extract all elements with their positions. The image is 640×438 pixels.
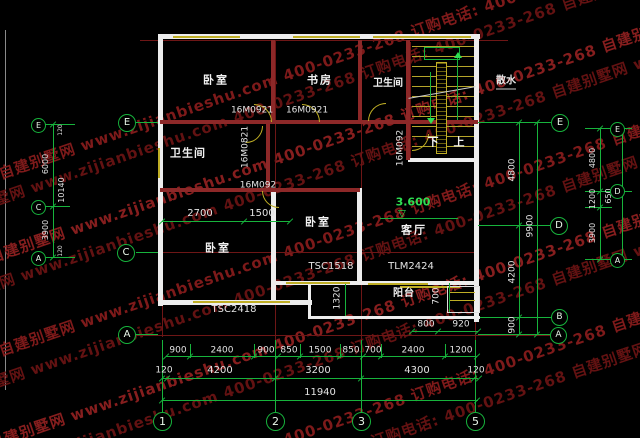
- dim-text: 6000: [42, 154, 50, 174]
- dim-text: 120: [58, 124, 64, 135]
- dim-text: 700: [364, 347, 381, 356]
- axis-bubble-A: A: [118, 326, 136, 344]
- dim-line: [478, 334, 550, 335]
- dim-line: [478, 122, 552, 123]
- room-label-balcony: 阳台: [393, 289, 415, 299]
- dim-text: 800: [417, 321, 434, 330]
- level-line: [380, 218, 458, 219]
- axis-bubble-B: B: [551, 309, 568, 326]
- axis-bubble-D: D: [550, 217, 568, 235]
- dim-text: 4200: [207, 366, 232, 376]
- dim-line: [478, 225, 550, 226]
- axis-line: [146, 252, 478, 253]
- stair-arrow-up: [457, 58, 458, 120]
- axis-bubble-C: C: [31, 200, 46, 215]
- dim-text: 3200: [305, 366, 330, 376]
- dim-text: 1500: [249, 209, 274, 219]
- window: [293, 36, 360, 38]
- dim-line: [345, 284, 346, 316]
- dim-tick: [287, 218, 293, 224]
- axis-bubble-E: E: [31, 118, 46, 133]
- dim-line: [412, 331, 478, 332]
- dim-text: 1200: [450, 347, 473, 356]
- stair-arrow-down: [430, 72, 431, 120]
- dim-line: [42, 206, 70, 207]
- dim-text: 850: [280, 347, 297, 356]
- axis-stub: [136, 122, 158, 123]
- axis-bubble-E: E: [551, 114, 569, 132]
- dim-text: 900: [509, 316, 518, 333]
- wall-segment: [357, 188, 362, 283]
- dim-text: 3900: [42, 220, 50, 240]
- dim-text: 120: [155, 367, 172, 376]
- door-arc: [368, 103, 386, 121]
- axis-bubble-1: 1: [153, 412, 172, 431]
- window-tsc1518: [286, 282, 350, 284]
- axis-line: [140, 40, 508, 41]
- room-label-bedroom: 卧室: [203, 75, 229, 86]
- dim-text: 4800: [509, 159, 518, 182]
- dim-text: 4800: [589, 148, 597, 168]
- door-tag: 16M0821: [242, 126, 251, 168]
- dim-text: 1500: [309, 347, 332, 356]
- door-tag: TLM2424: [388, 262, 434, 272]
- window: [173, 36, 240, 38]
- dim-text: 2400: [402, 347, 425, 356]
- wall-segment: [474, 34, 479, 322]
- floor-plan-canvas: 自建别墅网 www.zijianbieshu.com 400-0233-268 …: [0, 0, 640, 438]
- room-label-bath: 卫生间: [373, 79, 403, 89]
- dim-text: 700: [433, 287, 442, 304]
- room-label-study: 书房: [307, 75, 333, 86]
- window: [158, 148, 160, 178]
- dim-text: 2700: [187, 209, 212, 219]
- stair-down-label: 下: [428, 137, 441, 148]
- room-label-bath: 卫生间: [170, 148, 206, 159]
- window: [373, 36, 471, 38]
- axis-bubble-D: D: [610, 184, 625, 199]
- wall-segment: [358, 40, 362, 124]
- level-value: 3.600: [396, 196, 431, 209]
- balcony-pier-hatch: [450, 300, 475, 301]
- dim-text: 1320: [334, 287, 343, 310]
- dim-text-total: 11940: [304, 388, 336, 398]
- dim-text: 3900: [589, 223, 597, 243]
- dim-line: [600, 128, 601, 259]
- dim-text: 900: [169, 347, 186, 356]
- dim-line: [53, 124, 54, 257]
- dim-text: 120: [58, 245, 64, 256]
- door-tag: 16M0921: [231, 107, 273, 116]
- axis-stub: [136, 252, 158, 253]
- room-label-living: 客厅: [401, 225, 427, 236]
- door-tag: 16M092: [397, 130, 406, 166]
- window-tag: TSC2418: [212, 305, 257, 315]
- apron-label: 散水: [496, 77, 516, 90]
- dim-text: 920: [452, 321, 469, 330]
- dim-line: [166, 356, 477, 357]
- axis-line: [410, 42, 411, 160]
- door-arc: [262, 191, 279, 208]
- window-tsc2418: [193, 301, 290, 303]
- window-tag: TSC1518: [309, 262, 354, 272]
- dim-line: [537, 122, 538, 334]
- wall-segment: [273, 188, 360, 192]
- sliding-door-tlm2424: [368, 283, 428, 285]
- axis-line: [135, 335, 553, 336]
- axis-bubble-E: E: [610, 122, 625, 137]
- axis-bubble-A: A: [610, 253, 625, 268]
- dim-text: 900: [257, 347, 274, 356]
- dim-line: [162, 400, 478, 401]
- door-tag: 16M0921: [286, 107, 328, 116]
- dim-line: [162, 378, 478, 379]
- axis-stub: [136, 334, 158, 335]
- axis-bubble-3: 3: [352, 412, 371, 431]
- dim-text: 850: [342, 347, 359, 356]
- dim-line: [449, 283, 450, 312]
- dim-text: 1200: [589, 189, 597, 209]
- room-label-bedroom: 卧室: [305, 217, 331, 228]
- dim-text: 2400: [211, 347, 234, 356]
- dim-text: 10140: [58, 177, 66, 202]
- balcony-pier-hatch: [450, 292, 475, 293]
- axis-bubble-2: 2: [266, 412, 285, 431]
- stair-up-label: 上: [454, 137, 467, 148]
- arrow-head-up-icon: [454, 52, 462, 58]
- dim-line: [519, 122, 520, 334]
- dim-text: 120: [467, 367, 484, 376]
- axis-bubble-A: A: [31, 251, 46, 266]
- dim-text: 4200: [509, 261, 518, 284]
- dim-text: 9900: [527, 215, 536, 238]
- wall-segment: [406, 40, 410, 160]
- room-label-bedroom: 卧室: [205, 243, 231, 254]
- dim-text: 4300: [404, 366, 429, 376]
- wall-segment: [408, 158, 478, 162]
- arrow-head-down-icon: [427, 118, 435, 124]
- axis-bubble-C: C: [117, 244, 135, 262]
- axis-bubble-A: A: [550, 327, 567, 344]
- wall-segment: [308, 283, 311, 318]
- level-triangle-icon: ▽: [398, 209, 406, 220]
- dim-line: [162, 221, 290, 222]
- axis-bubble-E: E: [118, 114, 136, 132]
- door-tag: 16M092: [240, 182, 276, 191]
- axis-bubble-5: 5: [466, 412, 485, 431]
- edge-line: [5, 30, 6, 390]
